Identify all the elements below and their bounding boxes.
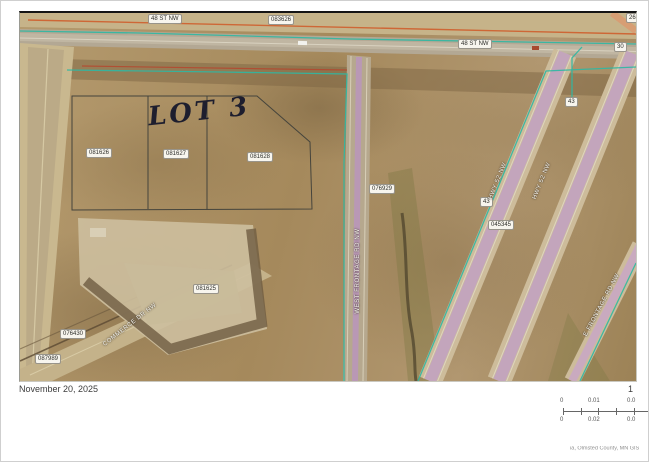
- parcel-label-076929: 076929: [369, 184, 395, 194]
- map-attribution: ia, Olmsted County, MN GIS: [570, 446, 639, 452]
- parcel-label-087989: 087989: [35, 354, 61, 364]
- scalebar-mi-0: 0: [560, 398, 563, 404]
- scalebar-tick: [634, 408, 635, 415]
- parcel-label-076430: 076430: [60, 329, 86, 339]
- export-date: November 20, 2025: [19, 384, 98, 394]
- road-label-west-frontage: WEST FRONTAGE RD NW: [355, 228, 361, 313]
- route-marker-30: 30: [614, 42, 627, 52]
- parcel-label-081628: 081628: [247, 152, 273, 162]
- scalebar-tick: [598, 408, 599, 415]
- scale-bar: 0 0.01 0.0 0 0.02 0.0: [557, 398, 649, 426]
- route-marker-43-east: 43: [565, 97, 578, 107]
- parcel-label-045345: 045345: [488, 220, 514, 230]
- parcel-label-081625: 081625: [193, 284, 219, 294]
- scalebar-km-end: 0.0: [627, 417, 635, 423]
- aerial-parcel-map: 48 ST NW 083626 26 48 ST NW 30 43 43 045…: [19, 11, 637, 382]
- scalebar-km-mid: 0.02: [588, 417, 600, 423]
- parcel-label-081626: 081626: [86, 148, 112, 158]
- scalebar-tick: [616, 408, 617, 415]
- scalebar-mi-mid: 0.01: [588, 398, 600, 404]
- scalebar-km-0: 0: [560, 417, 563, 423]
- parcel-label-083626: 083626: [268, 15, 294, 25]
- scale-ratio-text: 1: [628, 384, 633, 394]
- center-frontage-road-shape: [343, 55, 371, 381]
- scalebar-mi-end: 0.0: [627, 398, 635, 404]
- scalebar-line: [563, 411, 649, 412]
- road-label-48-st-nw-east: 48 ST NW: [458, 39, 492, 49]
- map-export-page: 48 ST NW 083626 26 48 ST NW 30 43 43 045…: [0, 0, 649, 462]
- road-label-48-st-nw-west: 48 ST NW: [148, 14, 182, 24]
- route-marker-26: 26: [626, 13, 637, 23]
- parcel-label-081627: 081627: [163, 149, 189, 159]
- scalebar-tick: [563, 408, 564, 415]
- scalebar-tick: [581, 408, 582, 415]
- map-linework: [20, 13, 636, 381]
